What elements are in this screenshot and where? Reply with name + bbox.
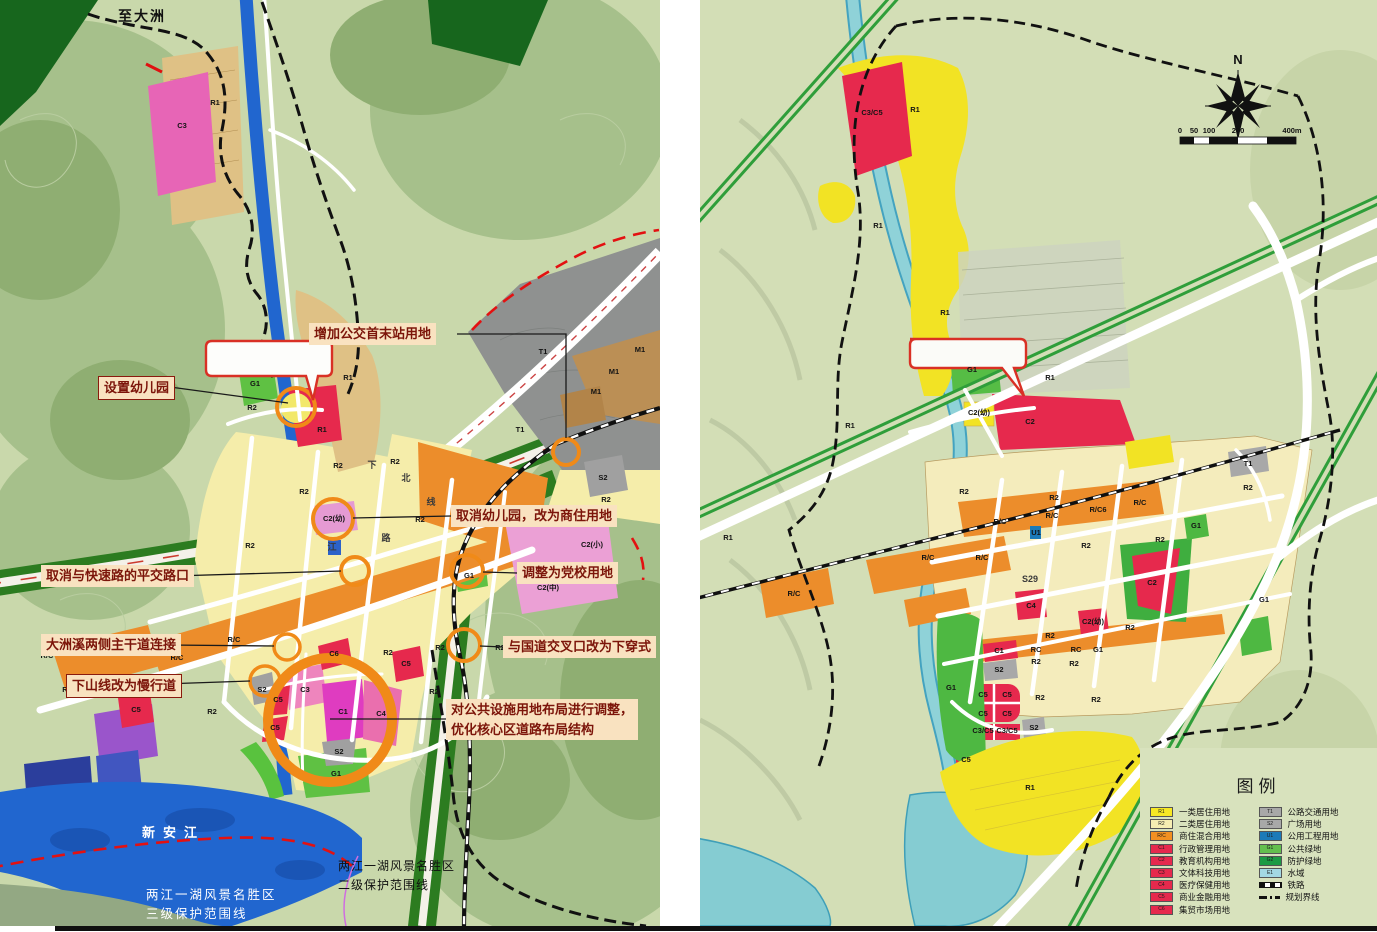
zone-code-label: R/C: [171, 653, 185, 662]
color-swatch: T1: [1259, 807, 1282, 817]
zone-code-label: C3/C5: [972, 726, 993, 735]
zone-code-label: R/C: [1046, 511, 1060, 520]
color-swatch: G2: [1259, 856, 1282, 866]
zone-code-label: G1: [1191, 521, 1201, 530]
legend-label: 商住混合用地: [1179, 830, 1230, 842]
legend-label: 商业金融用地: [1179, 891, 1230, 903]
right-map-panel: N 0 50 100 200 400m C3/C5R1R1R1G1R1C2(幼)…: [700, 0, 1377, 926]
legend-item: 规划界线: [1259, 891, 1368, 903]
road-name-label: S29: [1022, 574, 1038, 584]
zone-code-label: C3/C5: [861, 108, 882, 117]
zone-code-label: R/C: [1134, 498, 1148, 507]
legend-label: 水域: [1288, 867, 1305, 879]
zone-code-label: C3: [300, 685, 310, 694]
zone-code-label: M1: [609, 367, 619, 376]
zone-code-label: R/C: [976, 553, 990, 562]
boundary-line-swatch: [1259, 896, 1280, 900]
color-swatch: R2: [1150, 819, 1173, 829]
zone-code-label: R2: [601, 495, 611, 504]
zone-code-label: R2: [1091, 695, 1101, 704]
zone-code-label: C3/C5: [996, 726, 1017, 735]
zone-code-label: C2: [1025, 417, 1035, 426]
zone-code-label: RC: [1031, 645, 1042, 654]
zone-code-label: R1: [845, 421, 855, 430]
legend-item: T1公路交通用地: [1259, 806, 1368, 818]
zone-code-label: R/C: [994, 517, 1008, 526]
legend-item: C3文体科技用地: [1150, 867, 1259, 879]
road-name-label: 江: [327, 541, 336, 552]
zone-code-label: C2: [1147, 578, 1157, 587]
zone-code-label: R2: [333, 461, 343, 470]
zone-code-label: C5: [961, 755, 971, 764]
legend-item: C4医疗保健用地: [1150, 879, 1259, 891]
legend-label: 医疗保健用地: [1179, 879, 1230, 891]
zone-code-label: R2: [1069, 659, 1079, 668]
zone-code-label: C5: [978, 690, 988, 699]
zone-code-label: R2: [125, 683, 135, 692]
zone-code-label: C1: [994, 646, 1004, 655]
color-swatch: G1: [1259, 844, 1282, 854]
legend-label: 一类居住用地: [1179, 806, 1230, 818]
legend-item: C6集贸市场用地: [1150, 904, 1259, 916]
zone-code-label: R2: [207, 707, 217, 716]
zone-code-label: C5: [1002, 690, 1012, 699]
zone-code-label: T1: [516, 425, 525, 434]
color-swatch: S2: [1259, 819, 1282, 829]
railway-line-swatch: [1259, 882, 1282, 888]
legend-item: R/C商住混合用地: [1150, 830, 1259, 842]
color-swatch: C6: [1150, 905, 1173, 915]
legend-label: 公共绿地: [1288, 843, 1322, 855]
zone-code-label: R2: [383, 648, 393, 657]
zone-code-label: G1: [464, 571, 474, 580]
legend-title: 图例: [1140, 772, 1377, 797]
zone-code-label: R2: [1243, 483, 1253, 492]
zone-code-label: R1: [343, 373, 353, 382]
legend-item: S2广场用地: [1259, 818, 1368, 830]
zone-code-label: G1: [250, 379, 260, 388]
zone-code-label: RC: [1071, 645, 1082, 654]
color-swatch: C2: [1150, 856, 1173, 866]
zone-code-label: R2: [429, 687, 439, 696]
zone-code-label: C2(小): [581, 539, 604, 549]
zone-code-label: C2(中): [537, 582, 560, 592]
zone-code-label: C1: [338, 707, 348, 716]
legend-column-right: T1公路交通用地S2广场用地U1公用工程用地G1公共绿地G2防护绿地E1水域铁路…: [1259, 806, 1368, 916]
zone-code-label: R1: [940, 308, 950, 317]
legend-item: 铁路: [1259, 879, 1368, 891]
zone-code-label: C3: [177, 121, 187, 130]
zone-code-label: R1: [1025, 783, 1035, 792]
zone-code-label: M1: [635, 345, 645, 354]
svg-text:200: 200: [1232, 126, 1245, 135]
zone-code-label: R/C: [41, 651, 55, 660]
legend-label: 公路交通用地: [1288, 806, 1339, 818]
zone-code-label: R2: [1125, 623, 1135, 632]
legend-item: C2教育机构用地: [1150, 855, 1259, 867]
zone-code-label: R2: [1031, 657, 1041, 666]
color-swatch: C5: [1150, 892, 1173, 902]
compass-n-label: N: [1233, 52, 1242, 67]
zone-code-label: S2: [257, 685, 266, 694]
zone-code-label: C4: [1026, 601, 1036, 610]
zone-code-label: R2: [435, 643, 445, 652]
zone-code-label: C5: [270, 723, 280, 732]
legend-label: 教育机构用地: [1179, 855, 1230, 867]
legend-label: 行政管理用地: [1179, 843, 1230, 855]
zone-code-label: C5: [1002, 709, 1012, 718]
zone-code-label: S2: [1029, 723, 1038, 732]
road-name-label: 线: [426, 496, 435, 507]
planning-maps-page: C3R1R1G1R2R1R2R2R2R2R2C2(幼)T1T1M1M1M1S2R…: [0, 0, 1377, 932]
legend-item: R1一类居住用地: [1150, 806, 1259, 818]
left-map-graphic: C3R1R1G1R2R1R2R2R2R2R2C2(幼)T1T1M1M1M1S2R…: [0, 0, 660, 926]
legend-label: 集贸市场用地: [1179, 904, 1230, 916]
zone-code-label: G1: [1259, 595, 1269, 604]
legend-label: 广场用地: [1288, 818, 1322, 830]
legend-item: C5商业金融用地: [1150, 891, 1259, 903]
zone-code-label: R2: [495, 643, 505, 652]
color-swatch: C4: [1150, 880, 1173, 890]
svg-text:400m: 400m: [1282, 126, 1302, 135]
zone-code-label: R/C6: [1089, 505, 1106, 514]
zone-code-label: C6: [329, 649, 339, 658]
zone-code-label: R2: [247, 403, 257, 412]
color-swatch: C3: [1150, 868, 1173, 878]
legend-label: 铁路: [1288, 879, 1305, 891]
zone-code-label: R1: [723, 533, 733, 542]
zone-code-label: R1: [910, 105, 920, 114]
zone-code-label: R2: [1049, 493, 1059, 502]
zone-code-label: S2: [994, 665, 1003, 674]
legend-label: 防护绿地: [1288, 855, 1322, 867]
zone-code-label: R1: [873, 221, 883, 230]
zone-code-label: C4: [376, 709, 386, 718]
zone-code-label: R2: [299, 487, 309, 496]
zone-code-label: C5: [978, 709, 988, 718]
legend-item: E1水域: [1259, 867, 1368, 879]
color-swatch: E1: [1259, 868, 1282, 878]
zone-code-label: G1: [967, 365, 977, 374]
color-swatch: C1: [1150, 844, 1173, 854]
zone-code-label: R2: [390, 457, 400, 466]
zone-code-label: R2: [1035, 693, 1045, 702]
zone-code-label: R2: [245, 541, 255, 550]
zone-code-label: C2(幼): [968, 407, 991, 417]
zone-code-label: T1: [1244, 459, 1253, 468]
zone-code-label: T1: [539, 347, 548, 356]
svg-text:50: 50: [1190, 126, 1198, 135]
zone-code-label: R1: [210, 98, 220, 107]
legend-label: 规划界线: [1286, 891, 1320, 903]
zone-code-label: S2: [334, 747, 343, 756]
zone-code-label: U1: [1031, 528, 1041, 537]
legend-label: 公用工程用地: [1288, 830, 1339, 842]
zone-code-label: C5: [273, 695, 283, 704]
legend-item: U1公用工程用地: [1259, 830, 1368, 842]
bottom-rule: [55, 926, 1377, 931]
road-name-label: 北: [401, 472, 410, 483]
zone-code-label: M1: [591, 387, 601, 396]
svg-text:0: 0: [1178, 126, 1182, 135]
color-swatch: U1: [1259, 831, 1282, 841]
zone-code-label: R2: [1081, 541, 1091, 550]
zone-code-label: R2: [959, 487, 969, 496]
zone-code-label: R2: [415, 515, 425, 524]
zone-code-label: G1: [1093, 645, 1103, 654]
legend-column-left: R1一类居住用地R2二类居住用地R/C商住混合用地C1行政管理用地C2教育机构用…: [1150, 806, 1259, 916]
left-map-panel: C3R1R1G1R2R1R2R2R2R2R2C2(幼)T1T1M1M1M1S2R…: [0, 0, 660, 926]
legend-item: G1公共绿地: [1259, 843, 1368, 855]
legend-item: C1行政管理用地: [1150, 843, 1259, 855]
zone-code-label: R2: [62, 685, 72, 694]
zone-code-label: R/C: [456, 520, 470, 529]
zone-code-label: C2(幼): [1082, 616, 1105, 626]
legend-label: 二类居住用地: [1179, 818, 1230, 830]
zone-code-label: R1: [317, 425, 327, 434]
zone-code-label: R/C: [922, 553, 936, 562]
zone-code-label: G1: [331, 769, 341, 778]
zone-code-label: R2: [1155, 535, 1165, 544]
zone-code-label: R/C: [788, 589, 802, 598]
zone-code-label: C5: [131, 705, 141, 714]
legend-item: R2二类居住用地: [1150, 818, 1259, 830]
color-swatch: R/C: [1150, 831, 1173, 841]
road-name-label: 下: [367, 460, 376, 470]
zone-code-label: C5: [401, 659, 411, 668]
zone-code-label: R1: [1045, 373, 1055, 382]
zone-code-label: R/C: [228, 635, 242, 644]
legend: 图例 R1一类居住用地R2二类居住用地R/C商住混合用地C1行政管理用地C2教育…: [1140, 748, 1377, 926]
zone-code-label: R2: [1045, 631, 1055, 640]
zone-code-label: G1: [946, 683, 956, 692]
color-swatch: R1: [1150, 807, 1173, 817]
road-name-label: 路: [381, 532, 391, 543]
svg-text:100: 100: [1203, 126, 1216, 135]
zone-code-label: C2(幼): [323, 513, 346, 523]
zone-code-label: S2: [598, 473, 607, 482]
legend-label: 文体科技用地: [1179, 867, 1230, 879]
legend-item: G2防护绿地: [1259, 855, 1368, 867]
